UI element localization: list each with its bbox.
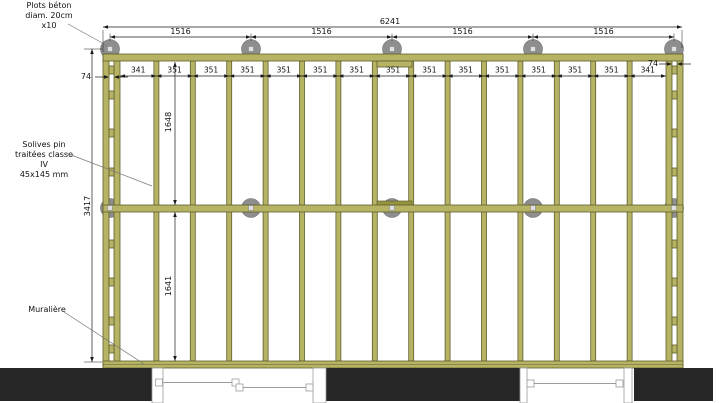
bay-dim-label: 351 (459, 66, 474, 75)
blocking (109, 345, 114, 353)
dim-rim-gap-left: 74 (81, 72, 91, 81)
opening-jamb (520, 368, 527, 403)
wall-segment (0, 368, 152, 401)
bay-dim-label: 351 (386, 66, 401, 75)
dim-arrow (533, 35, 538, 39)
plot-fixing-plate (249, 206, 254, 211)
plot-spacing-label: 1516 (311, 27, 331, 36)
bay-dim-label: 351 (422, 66, 437, 75)
dim-arrow (173, 62, 177, 67)
plot-fixing-plate (672, 47, 677, 52)
generated-geometry: 1516151615161516341351351351351351351351… (0, 24, 713, 403)
blocking (672, 168, 677, 176)
bay-dim-label: 351 (531, 66, 546, 75)
bay-dim-label: 351 (495, 66, 510, 75)
plot-fixing-plate (390, 206, 395, 211)
wall-segment (634, 368, 713, 401)
dim-arrow (90, 49, 94, 54)
panel-end-block (527, 380, 534, 387)
dim-arrow (677, 25, 682, 29)
dim-arrow (669, 35, 674, 39)
plot-fixing-plate (249, 47, 254, 52)
dim-lower-span: 1641 (164, 276, 173, 296)
plot-fixing-plate (108, 47, 113, 52)
panel-end-block (156, 379, 163, 386)
blocking (672, 345, 677, 353)
bay-dim-label: 351 (204, 66, 219, 75)
dim-overall-width: 6241 (380, 17, 400, 26)
bay-dim-label: 351 (568, 66, 583, 75)
blocking (672, 129, 677, 137)
dim-arrow (246, 35, 251, 39)
bay-dim-label: 341 (131, 66, 146, 75)
dim-arrow (661, 74, 666, 78)
plots-leader-line (68, 24, 106, 45)
blocking (109, 66, 114, 74)
plot-fixing-plate (672, 206, 677, 211)
dim-arrow (110, 35, 115, 39)
bay-dim-label: 351 (604, 66, 619, 75)
blocking (672, 91, 677, 99)
dim-arrow (90, 357, 94, 362)
blocking (109, 168, 114, 176)
dim-rim-gap-right: 74 (648, 59, 658, 68)
top-beam (103, 54, 683, 61)
plot-fixing-plate (108, 206, 113, 211)
panel-end-block (306, 384, 313, 391)
plot-spacing-label: 1516 (452, 27, 472, 36)
framing-plan-drawing: Plots béton diam. 20cm x10 Solives pin t… (0, 0, 720, 403)
blocking (672, 317, 677, 325)
dim-arrow (173, 200, 177, 205)
bay-dim-label: 351 (240, 66, 255, 75)
blocking (672, 240, 677, 248)
plot-fixing-plate (531, 206, 536, 211)
blocking (109, 91, 114, 99)
panel-end-block (236, 384, 243, 391)
panel-end-block (616, 380, 623, 387)
plot-fixing-plate (390, 47, 395, 52)
plot-spacing-label: 1516 (593, 27, 613, 36)
opening-jamb (313, 368, 326, 403)
bay-dim-label: 351 (313, 66, 328, 75)
dim-arrow (251, 35, 256, 39)
dim-overall-depth: 3417 (83, 196, 92, 216)
bay-dim-label: 351 (277, 66, 292, 75)
dim-arrow (528, 35, 533, 39)
blocking (109, 129, 114, 137)
opening-jamb (624, 368, 632, 403)
plot-fixing-plate (531, 47, 536, 52)
blocking (109, 317, 114, 325)
wall-segment (320, 368, 520, 401)
blocking (109, 240, 114, 248)
plot-spacing-label: 1516 (170, 27, 190, 36)
dim-arrow (173, 212, 177, 217)
dim-arrow (103, 25, 108, 29)
bay-dim-label: 351 (349, 66, 364, 75)
blocking (672, 66, 677, 74)
dim-arrow (387, 35, 392, 39)
blocking (109, 278, 114, 286)
blocking (672, 278, 677, 286)
framing-plan-svg: 1516151615161516341351351351351351351351… (0, 0, 720, 403)
dim-upper-span: 1648 (164, 112, 173, 132)
dim-arrow (392, 35, 397, 39)
dim-arrow (173, 356, 177, 361)
